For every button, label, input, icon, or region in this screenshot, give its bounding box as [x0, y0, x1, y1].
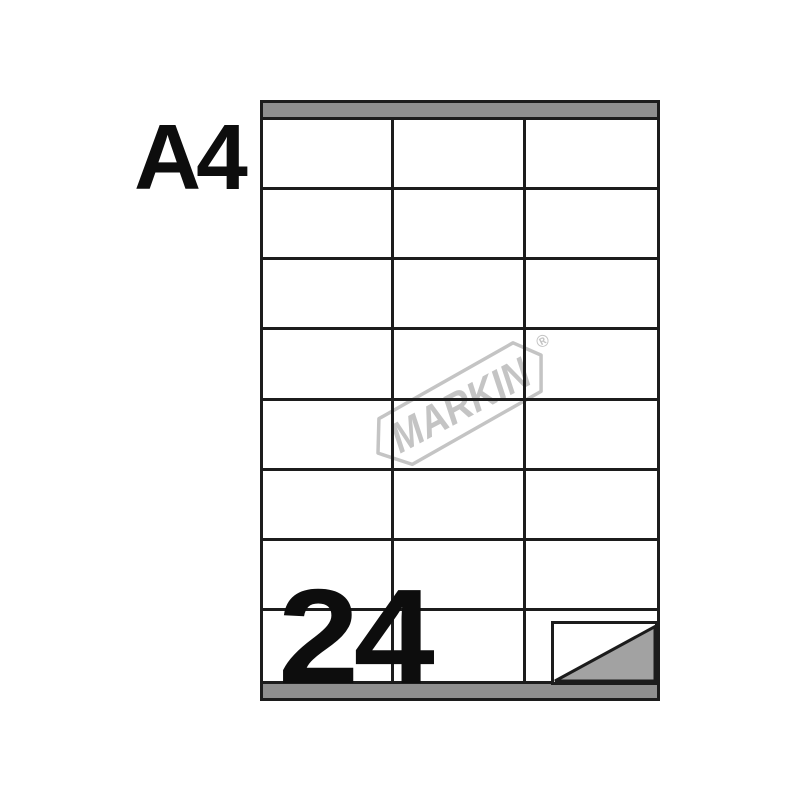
sheet-top-margin-bar: [263, 103, 657, 120]
label-cell: [526, 471, 657, 541]
peeled-label-icon: [551, 621, 658, 685]
label-cell: [394, 120, 525, 190]
label-cell: [263, 190, 394, 260]
paper-format-label: A4: [134, 111, 243, 204]
label-cell: [394, 330, 525, 400]
label-cell: [263, 330, 394, 400]
product-image: A4 MARKIN ® 24: [0, 0, 800, 800]
label-cell: [394, 471, 525, 541]
label-cell: [394, 260, 525, 330]
label-cell: [526, 541, 657, 611]
label-cell: [263, 260, 394, 330]
label-cell: [526, 260, 657, 330]
label-cell: [526, 120, 657, 190]
label-cell: [263, 401, 394, 471]
label-cell: [394, 401, 525, 471]
label-cell: [526, 401, 657, 471]
label-cell: [526, 330, 657, 400]
label-cell: [263, 120, 394, 190]
labels-count: 24: [278, 569, 429, 704]
label-cell: [526, 190, 657, 260]
label-cell: [263, 471, 394, 541]
label-cell: [394, 190, 525, 260]
